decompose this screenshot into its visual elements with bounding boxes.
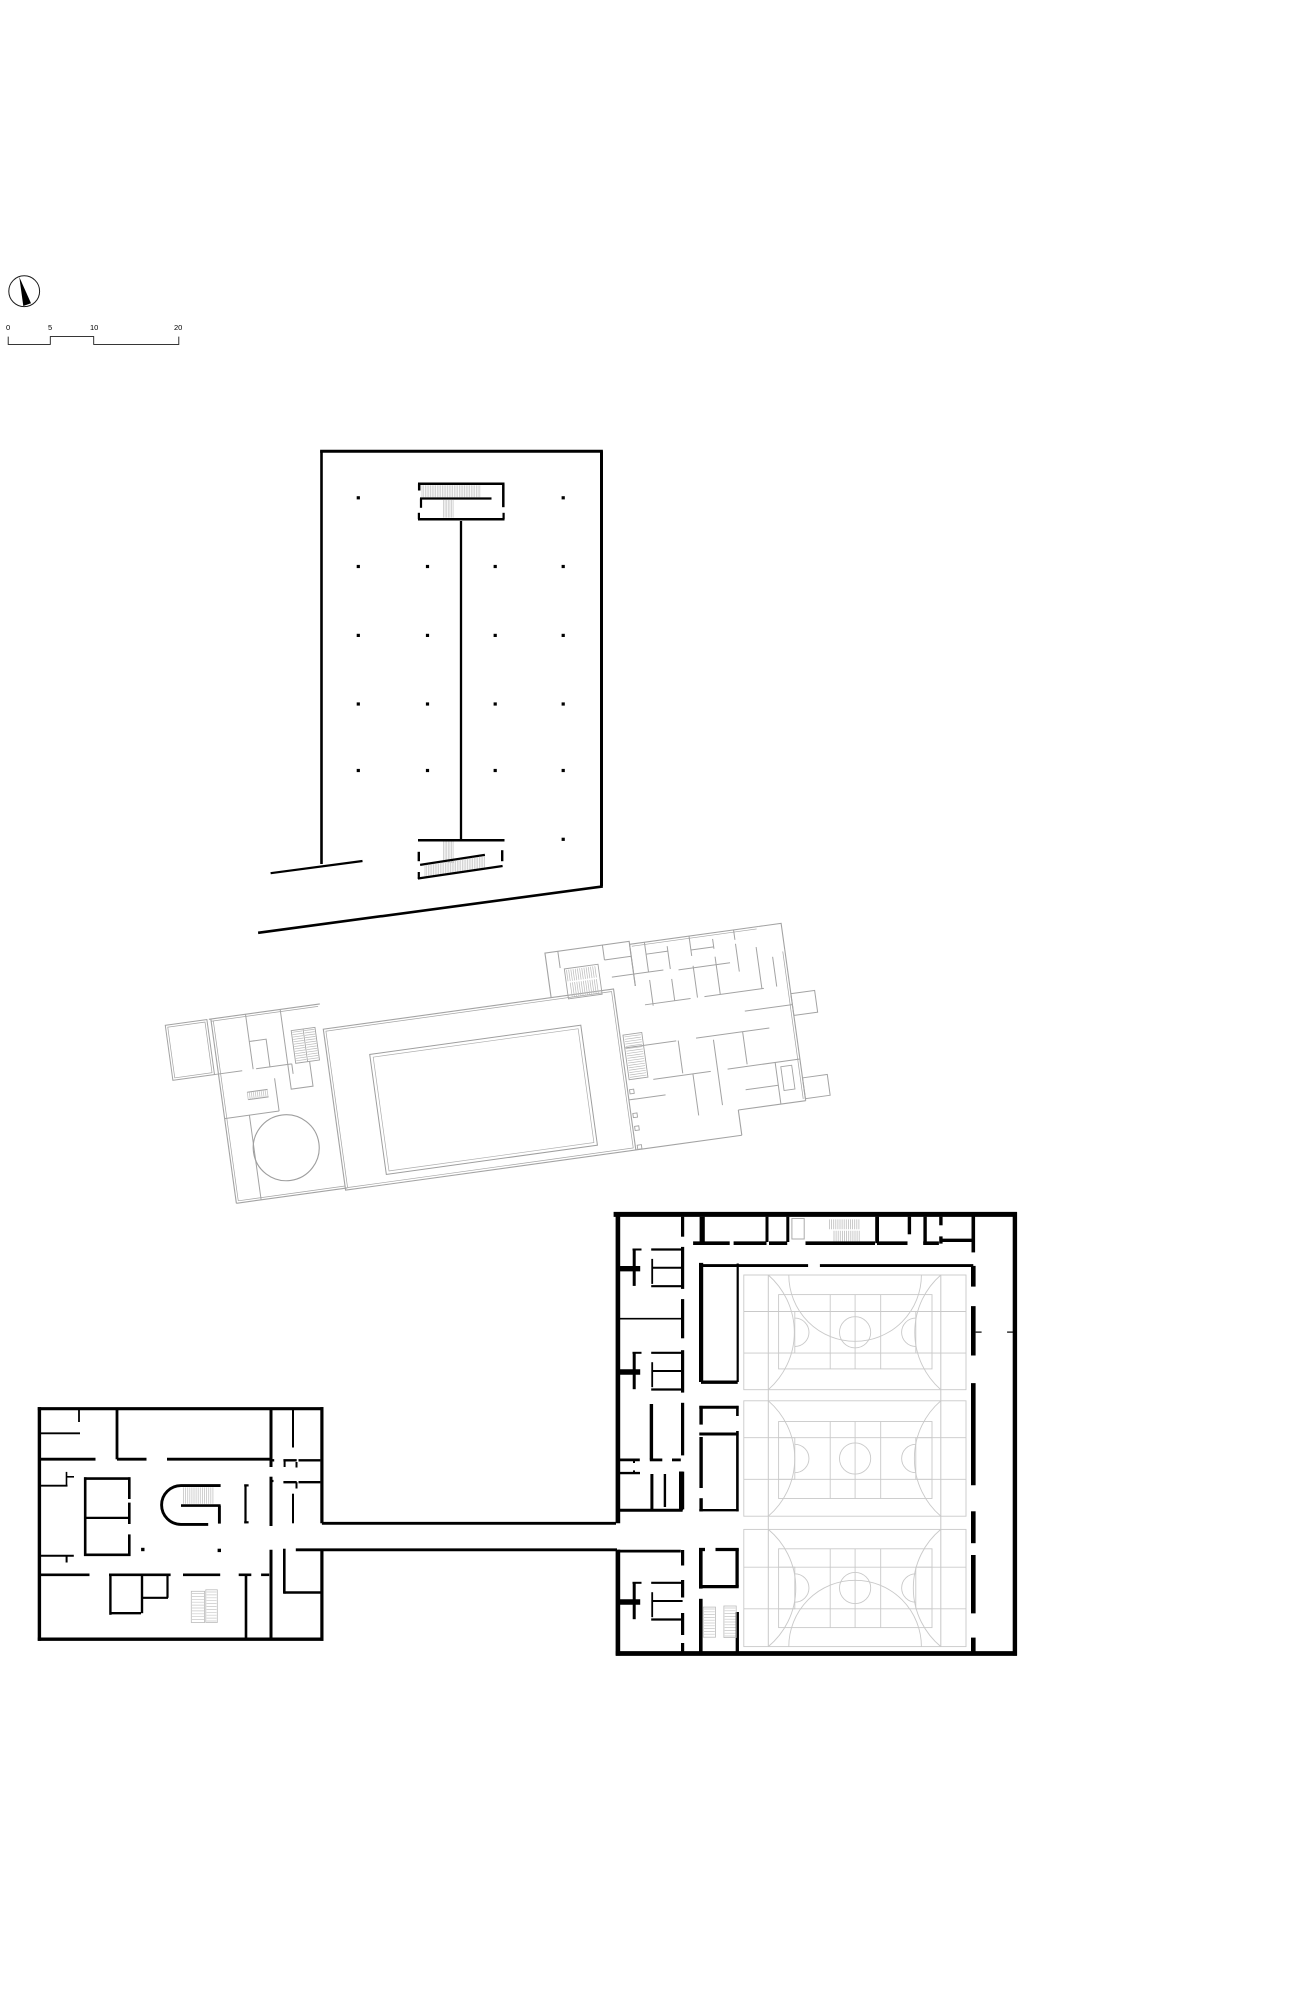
svg-text:5: 5 bbox=[48, 323, 52, 332]
svg-text:10: 10 bbox=[90, 323, 98, 332]
svg-text:20: 20 bbox=[174, 323, 182, 332]
svg-text:0: 0 bbox=[6, 323, 10, 332]
